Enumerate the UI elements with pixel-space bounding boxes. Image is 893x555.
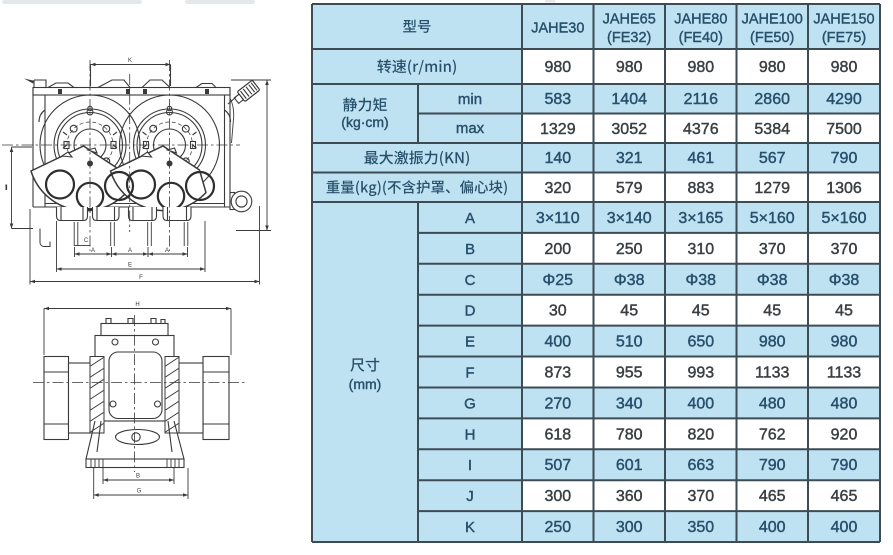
svg-text:3×165: 3×165	[678, 210, 723, 227]
svg-text:601: 601	[616, 457, 643, 474]
svg-text:G: G	[464, 395, 476, 412]
svg-text:370: 370	[687, 488, 714, 505]
svg-text:250: 250	[616, 241, 643, 258]
svg-text:980: 980	[687, 59, 714, 76]
svg-text:A: A	[128, 248, 132, 254]
svg-text:J: J	[466, 488, 474, 505]
svg-text:321: 321	[616, 150, 643, 167]
svg-text:45: 45	[835, 303, 853, 320]
svg-text:1329: 1329	[540, 121, 576, 138]
svg-text:JAHE150: JAHE150	[813, 12, 874, 28]
svg-text:360: 360	[616, 488, 643, 505]
svg-text:45: 45	[692, 303, 710, 320]
svg-text:2860: 2860	[754, 91, 790, 108]
svg-text:510: 510	[616, 334, 643, 351]
svg-text:E: E	[128, 263, 132, 269]
svg-text:(mm): (mm)	[349, 376, 382, 392]
svg-text:3052: 3052	[611, 121, 647, 138]
svg-text:D: D	[465, 303, 476, 320]
svg-text:920: 920	[831, 426, 858, 443]
svg-text:780: 780	[616, 426, 643, 443]
svg-text:JAHE30: JAHE30	[531, 21, 584, 37]
svg-text:30: 30	[549, 303, 567, 320]
svg-text:663: 663	[687, 457, 714, 474]
svg-text:400: 400	[759, 519, 786, 536]
svg-text:270: 270	[544, 395, 571, 412]
svg-text:370: 370	[759, 241, 786, 258]
svg-text:A: A	[91, 248, 95, 254]
svg-text:579: 579	[616, 180, 643, 197]
svg-text:(FE40): (FE40)	[679, 30, 723, 46]
svg-text:(kg·cm): (kg·cm)	[341, 114, 388, 130]
svg-text:H: H	[135, 302, 139, 308]
svg-text:480: 480	[759, 395, 786, 412]
svg-text:480: 480	[831, 395, 858, 412]
svg-text:310: 310	[687, 241, 714, 258]
svg-text:873: 873	[544, 365, 571, 382]
svg-text:980: 980	[759, 59, 786, 76]
svg-text:H: H	[465, 426, 476, 443]
svg-text:(FE32): (FE32)	[607, 30, 651, 46]
svg-text:790: 790	[759, 457, 786, 474]
svg-text:320: 320	[544, 180, 571, 197]
svg-text:465: 465	[759, 488, 786, 505]
svg-text:5×160: 5×160	[750, 210, 795, 227]
svg-text:567: 567	[759, 150, 786, 167]
svg-text:1306: 1306	[826, 180, 862, 197]
svg-text:max: max	[456, 120, 485, 137]
svg-text:3×110: 3×110	[536, 210, 580, 227]
svg-text:7500: 7500	[826, 121, 862, 138]
svg-text:980: 980	[759, 334, 786, 351]
svg-text:955: 955	[616, 365, 643, 382]
svg-text:340: 340	[616, 395, 643, 412]
svg-text:980: 980	[831, 59, 858, 76]
svg-text:K: K	[128, 58, 132, 64]
svg-text:F: F	[465, 365, 474, 382]
svg-text:Φ38: Φ38	[757, 272, 788, 289]
svg-text:140: 140	[544, 150, 571, 167]
svg-text:980: 980	[831, 334, 858, 351]
svg-text:790: 790	[831, 457, 858, 474]
svg-text:(FE75): (FE75)	[822, 30, 866, 46]
svg-text:650: 650	[687, 334, 714, 351]
svg-text:A: A	[465, 210, 475, 227]
svg-text:980: 980	[616, 59, 643, 76]
svg-text:5×160: 5×160	[822, 210, 867, 227]
svg-text:1133: 1133	[755, 365, 790, 382]
svg-text:300: 300	[544, 488, 571, 505]
svg-text:4376: 4376	[683, 121, 719, 138]
svg-text:400: 400	[831, 519, 858, 536]
svg-text:350: 350	[687, 519, 714, 536]
svg-text:1133: 1133	[827, 365, 862, 382]
svg-text:250: 250	[544, 519, 571, 536]
svg-text:2116: 2116	[684, 91, 719, 108]
svg-text:JAHE100: JAHE100	[742, 12, 803, 28]
svg-text:370: 370	[831, 241, 858, 258]
svg-text:G: G	[137, 489, 142, 495]
svg-text:A: A	[165, 248, 169, 254]
svg-text:583: 583	[544, 91, 571, 108]
svg-text:400: 400	[687, 395, 714, 412]
svg-text:618: 618	[544, 426, 571, 443]
svg-text:C: C	[84, 238, 89, 244]
svg-text:3×140: 3×140	[607, 210, 652, 227]
svg-text:5384: 5384	[754, 121, 790, 138]
svg-text:F: F	[139, 275, 143, 281]
svg-text:461: 461	[687, 150, 714, 167]
svg-text:300: 300	[616, 519, 643, 536]
svg-text:883: 883	[687, 180, 714, 197]
svg-text:993: 993	[687, 365, 714, 382]
svg-text:K: K	[465, 519, 475, 536]
svg-text:465: 465	[831, 488, 858, 505]
svg-text:1404: 1404	[611, 91, 647, 108]
svg-text:Φ38: Φ38	[686, 272, 717, 289]
svg-text:820: 820	[687, 426, 714, 443]
svg-text:1279: 1279	[754, 180, 790, 197]
svg-text:E: E	[465, 334, 475, 351]
svg-text:Φ25: Φ25	[543, 272, 574, 289]
svg-text:Φ38: Φ38	[614, 272, 645, 289]
svg-text:980: 980	[544, 59, 571, 76]
svg-text:B: B	[465, 241, 475, 258]
svg-text:B: B	[136, 474, 140, 480]
svg-text:45: 45	[620, 303, 638, 320]
svg-text:762: 762	[759, 426, 786, 443]
svg-text:790: 790	[831, 150, 858, 167]
svg-text:45: 45	[763, 303, 781, 320]
svg-text:I: I	[468, 457, 472, 474]
svg-text:200: 200	[544, 241, 571, 258]
svg-text:JAHE80: JAHE80	[674, 12, 727, 28]
svg-text:JAHE65: JAHE65	[603, 12, 656, 28]
svg-text:C: C	[465, 272, 476, 289]
svg-text:min: min	[458, 91, 482, 108]
svg-text:400: 400	[544, 334, 571, 351]
svg-text:4290: 4290	[826, 91, 862, 108]
svg-text:Φ38: Φ38	[829, 272, 860, 289]
svg-text:(FE50): (FE50)	[750, 30, 794, 46]
svg-text:507: 507	[544, 457, 571, 474]
